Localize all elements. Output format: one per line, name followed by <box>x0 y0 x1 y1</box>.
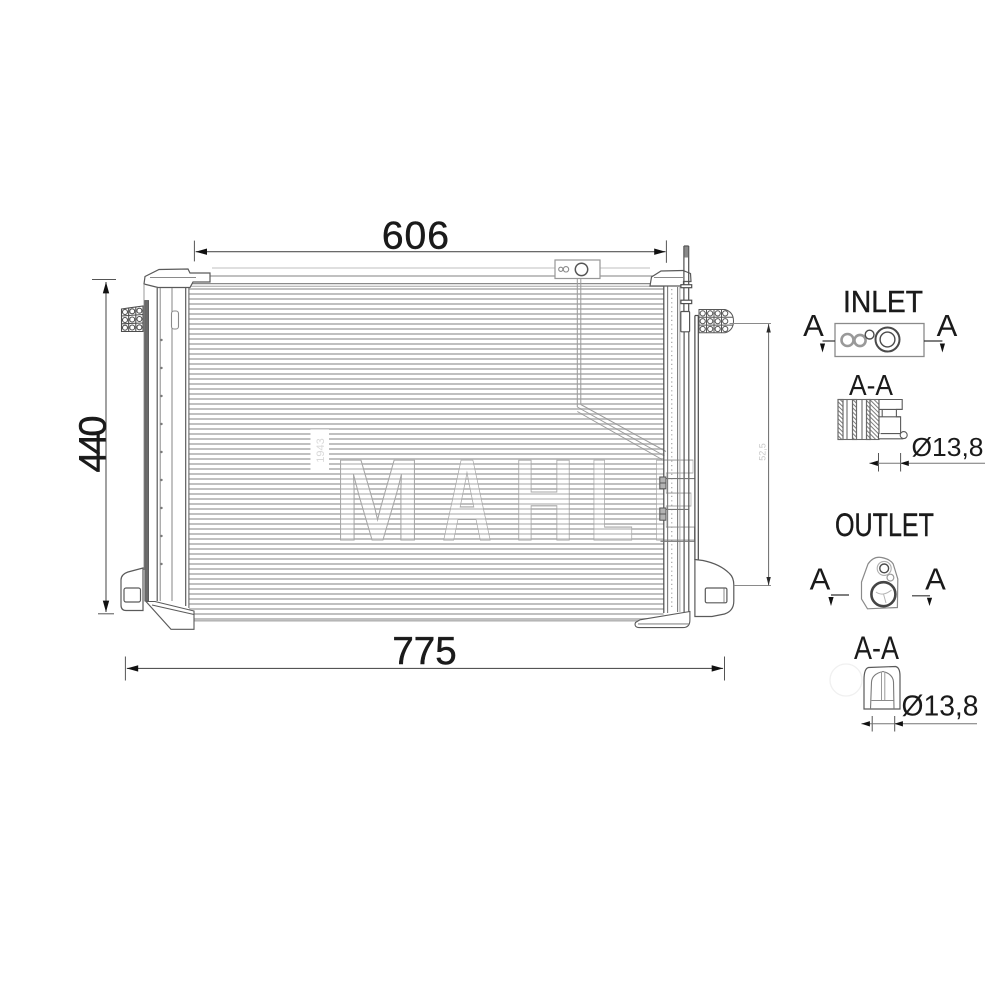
svg-text:A: A <box>925 562 946 597</box>
svg-text:M: M <box>334 435 422 565</box>
svg-text:775: 775 <box>392 630 456 673</box>
svg-text:L: L <box>589 435 634 565</box>
svg-text:E: E <box>652 435 697 565</box>
svg-text:440: 440 <box>73 416 115 473</box>
svg-text:H: H <box>513 435 575 565</box>
svg-text:A-A: A-A <box>854 630 900 666</box>
svg-text:OUTLET: OUTLET <box>835 507 934 543</box>
svg-text:1943: 1943 <box>315 438 327 462</box>
svg-text:A: A <box>442 435 492 565</box>
svg-text:Ø13,8: Ø13,8 <box>902 691 979 723</box>
svg-text:52,5: 52,5 <box>758 443 768 461</box>
svg-text:A-A: A-A <box>849 370 894 402</box>
svg-text:Ø13,8: Ø13,8 <box>912 432 984 462</box>
svg-text:A: A <box>803 308 824 343</box>
svg-text:A: A <box>810 562 831 597</box>
svg-text:606: 606 <box>382 214 449 257</box>
svg-text:INLET: INLET <box>843 284 923 319</box>
svg-text:A: A <box>937 308 958 343</box>
